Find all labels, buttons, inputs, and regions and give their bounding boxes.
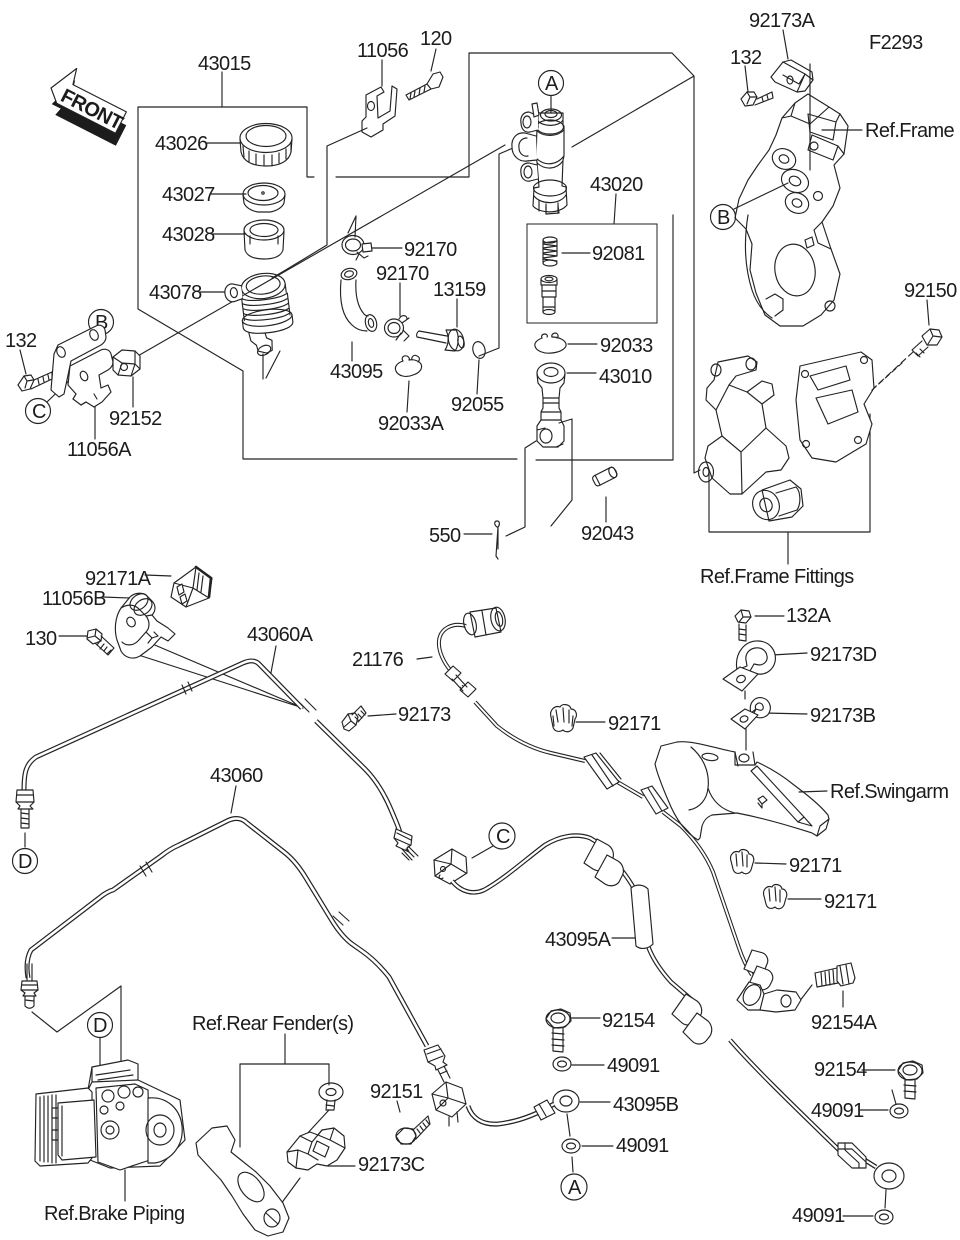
svg-text:B: B: [717, 207, 730, 229]
svg-text:92154: 92154: [602, 1010, 655, 1032]
svg-text:43028: 43028: [162, 224, 215, 246]
svg-text:49091: 49091: [616, 1135, 669, 1157]
svg-text:92173C: 92173C: [358, 1154, 425, 1176]
svg-text:92151: 92151: [370, 1081, 423, 1103]
svg-text:43027: 43027: [162, 184, 215, 206]
svg-text:92033: 92033: [600, 335, 653, 357]
svg-text:49091: 49091: [607, 1055, 660, 1077]
svg-text:Ref.Frame: Ref.Frame: [865, 120, 955, 142]
svg-text:550: 550: [429, 525, 461, 547]
svg-text:92170: 92170: [404, 239, 457, 261]
svg-text:92170: 92170: [376, 263, 429, 285]
svg-text:120: 120: [420, 28, 452, 50]
svg-text:43095: 43095: [330, 361, 383, 383]
svg-text:43015: 43015: [198, 53, 251, 75]
svg-text:92152: 92152: [109, 408, 162, 430]
svg-text:Ref.Frame Fittings: Ref.Frame Fittings: [700, 566, 854, 588]
svg-text:92171: 92171: [608, 713, 661, 735]
svg-text:43060A: 43060A: [247, 624, 314, 646]
svg-text:43095B: 43095B: [613, 1094, 679, 1116]
svg-text:132A: 132A: [786, 605, 832, 627]
svg-text:43095A: 43095A: [545, 929, 612, 951]
svg-text:C: C: [32, 401, 46, 423]
svg-text:132: 132: [5, 330, 37, 352]
svg-text:92173A: 92173A: [749, 10, 816, 32]
svg-text:21176: 21176: [352, 649, 404, 671]
svg-text:43010: 43010: [599, 366, 652, 388]
svg-text:92173: 92173: [398, 704, 451, 726]
svg-text:92043: 92043: [581, 523, 634, 545]
svg-text:92033A: 92033A: [378, 413, 445, 435]
svg-text:Ref.Swingarm: Ref.Swingarm: [830, 781, 948, 803]
svg-text:92055: 92055: [451, 394, 504, 416]
svg-text:43020: 43020: [590, 174, 643, 196]
svg-text:D: D: [18, 851, 32, 873]
svg-text:13159: 13159: [433, 279, 486, 301]
svg-text:49091: 49091: [811, 1100, 864, 1122]
svg-text:92171: 92171: [789, 855, 842, 877]
svg-text:A: A: [545, 73, 559, 95]
svg-text:49091: 49091: [792, 1205, 845, 1227]
svg-text:92173B: 92173B: [810, 705, 876, 727]
svg-text:Ref.Brake Piping: Ref.Brake Piping: [44, 1203, 184, 1225]
svg-text:92150: 92150: [904, 280, 957, 302]
svg-text:43026: 43026: [155, 133, 208, 155]
svg-text:92173D: 92173D: [810, 644, 877, 666]
svg-text:130: 130: [25, 628, 57, 650]
svg-text:43060: 43060: [210, 765, 263, 787]
svg-text:D: D: [93, 1015, 107, 1037]
svg-text:11056A: 11056A: [67, 439, 132, 461]
svg-text:92171: 92171: [824, 891, 877, 913]
svg-text:11056: 11056: [357, 40, 409, 62]
svg-text:92171A: 92171A: [85, 568, 152, 590]
svg-text:A: A: [568, 1177, 582, 1199]
svg-text:43078: 43078: [149, 282, 202, 304]
svg-text:11056B: 11056B: [42, 588, 106, 610]
svg-text:Ref.Rear Fender(s): Ref.Rear Fender(s): [192, 1013, 353, 1035]
svg-text:92081: 92081: [592, 243, 645, 265]
svg-text:132: 132: [730, 47, 762, 69]
svg-text:92154: 92154: [814, 1059, 867, 1081]
svg-text:F2293: F2293: [869, 32, 923, 54]
svg-text:C: C: [496, 826, 510, 848]
svg-text:92154A: 92154A: [811, 1012, 878, 1034]
